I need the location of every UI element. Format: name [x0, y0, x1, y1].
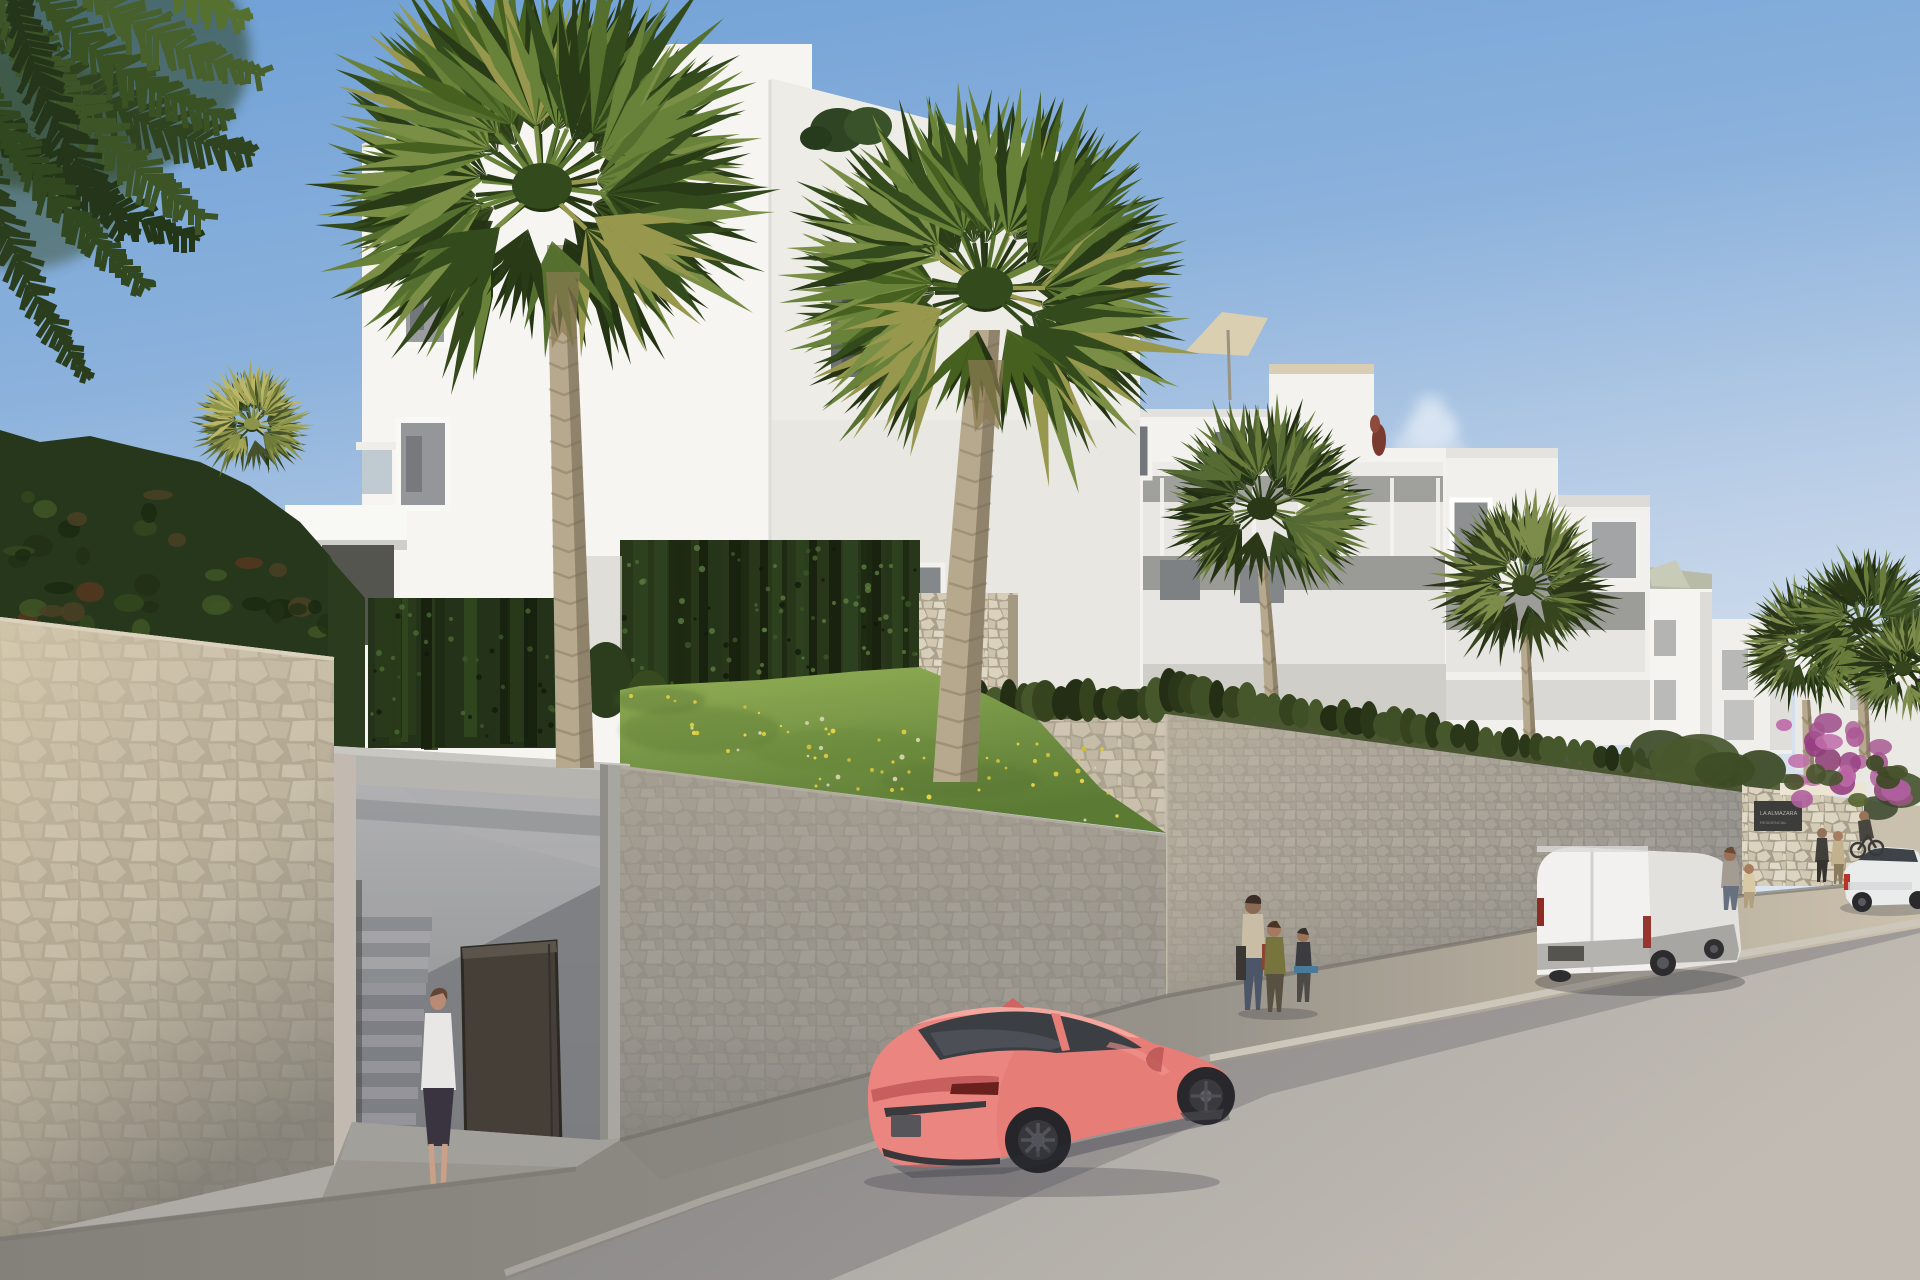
svg-text:LA ALMAZARA: LA ALMAZARA [1760, 811, 1798, 817]
svg-text:RESIDENCIAL: RESIDENCIAL [1760, 820, 1787, 825]
